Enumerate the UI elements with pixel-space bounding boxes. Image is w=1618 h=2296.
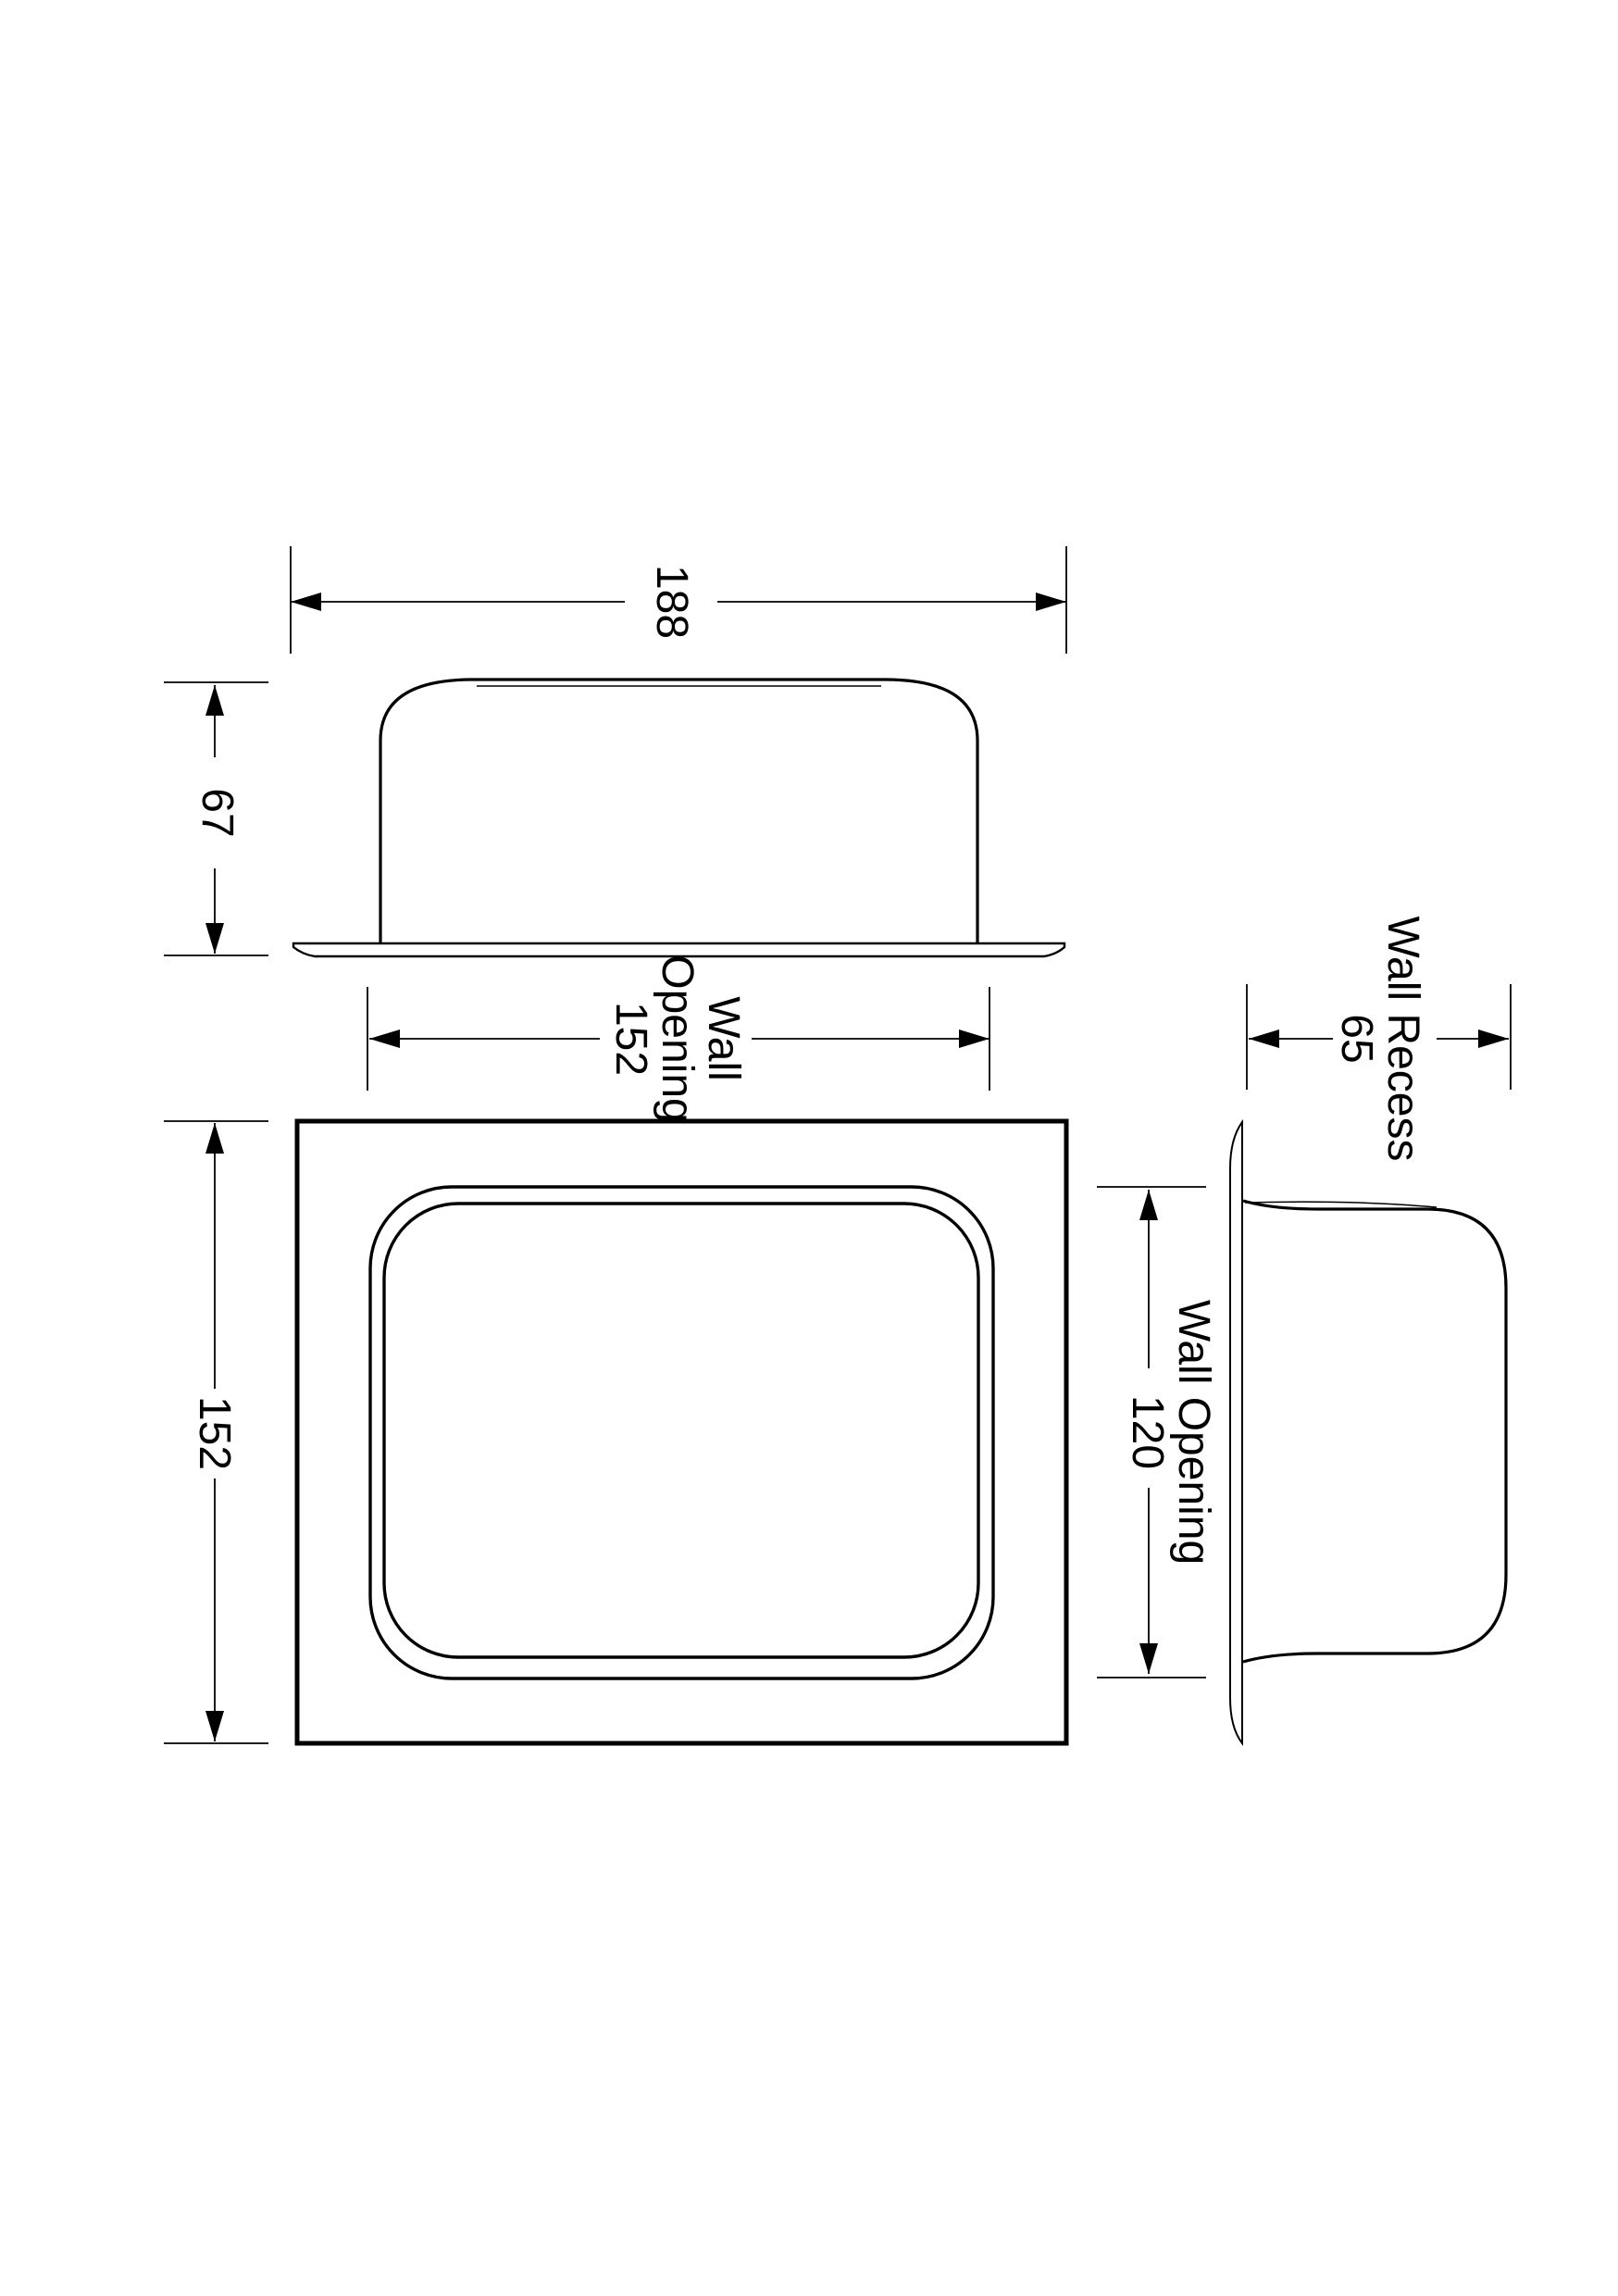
extension-lines <box>164 546 1511 1743</box>
arrow-right-icon <box>1036 593 1066 611</box>
dim-text: 120 <box>1124 1300 1170 1565</box>
side-view-body-outline <box>1243 1201 1506 1662</box>
dim-text: 65 <box>1333 917 1379 1162</box>
arrow-up-icon <box>205 1123 224 1154</box>
dim-label-overall-width: 188 <box>648 565 694 639</box>
dim-label-wall-opening-152: Wall Opening 152 <box>607 955 746 1122</box>
front-view-wall-opening <box>370 1187 993 1678</box>
dim-text: 67 <box>193 788 240 837</box>
front-view-recess-bottom <box>384 1204 978 1657</box>
dim-text: Wall Recess <box>1379 917 1425 1162</box>
arrow-right-icon <box>959 1029 989 1048</box>
drawing-sheet: 188 67 Wall Opening 152 152 Wall Opening… <box>0 0 1618 2296</box>
top-view <box>293 680 1064 956</box>
dim-label-wall-recess-65: Wall Recess 65 <box>1333 917 1425 1162</box>
front-view <box>297 1121 1066 1743</box>
dim-text: 188 <box>648 565 694 639</box>
dimension-arrows <box>205 593 1509 1741</box>
front-view-outline <box>297 1121 1066 1743</box>
dim-text: 152 <box>607 955 653 1122</box>
arrow-right-icon <box>1478 1029 1509 1048</box>
dim-text: Opening <box>653 955 700 1122</box>
dim-label-overall-depth: 67 <box>193 788 240 837</box>
arrow-left-icon <box>369 1029 400 1048</box>
dim-label-wall-opening-120: Wall Opening 120 <box>1124 1300 1216 1565</box>
dimension-lines <box>215 602 1509 1741</box>
arrow-down-icon <box>1139 1643 1158 1674</box>
dim-text: Wall <box>700 955 746 1122</box>
side-view <box>1230 1122 1506 1743</box>
dim-text: 152 <box>191 1396 237 1470</box>
dim-text: Wall Opening <box>1170 1300 1216 1565</box>
dim-label-front-height: 152 <box>191 1396 237 1470</box>
arrow-up-icon <box>205 685 224 716</box>
arrow-left-icon <box>1249 1029 1279 1048</box>
arrow-left-icon <box>291 593 321 611</box>
arrow-down-icon <box>205 1711 224 1741</box>
arrow-down-icon <box>205 923 224 954</box>
arrow-up-icon <box>1139 1190 1158 1220</box>
side-view-flange <box>1230 1122 1242 1743</box>
top-view-body-outline <box>380 680 977 943</box>
